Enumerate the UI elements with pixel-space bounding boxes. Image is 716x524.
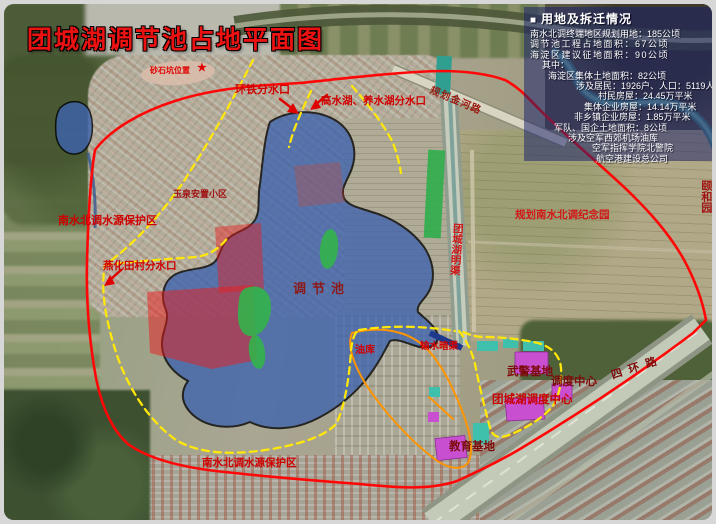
label-memorial-park: 规划南水北调纪念园 xyxy=(515,210,610,221)
label-culvert: 输水暗渠 xyxy=(420,342,458,352)
label-oil-depot: 油库 xyxy=(355,346,375,357)
legend-line: 涉及居民：1926户、人口：5119人 xyxy=(524,81,712,91)
label-armed-police-base: 武警基地 xyxy=(507,366,553,378)
legend-line: 其中： xyxy=(524,60,712,70)
teal-building-2 xyxy=(503,339,518,348)
legend-line: 村民房屋：24.45万平米 xyxy=(524,91,712,101)
legend-line: 海淀区集体土地面积：82公顷 xyxy=(524,71,712,81)
label-tuanchenghu-dispatch-center: 团城湖调度中心 xyxy=(492,394,573,406)
label-huantie-outlet: 环铁分水口 xyxy=(235,85,290,97)
legend-line: 南水北调终端地区规划用地：185公顷 xyxy=(524,29,712,39)
legend-title: ■用地及拆迁情况 xyxy=(524,7,712,29)
legend-line: 集体企业房屋：14.14万平米 xyxy=(524,102,712,112)
sand-pit-note: 砂石坑位置 xyxy=(150,67,190,76)
magenta-building-5 xyxy=(428,412,439,422)
red-zone-upper xyxy=(215,223,264,293)
legend-line: 海淀区建议征地面积：90公顷 xyxy=(524,50,712,60)
regulation-pool-water xyxy=(162,112,438,428)
teal-building-5 xyxy=(429,387,440,397)
page-title: 团城湖调节池占地平面图 xyxy=(27,20,324,56)
channel-green-strip xyxy=(424,150,446,239)
teal-building-1 xyxy=(477,341,498,351)
satellite-map: 团城湖调节池占地平面图 砂石坑位置 ★ 环铁分水口 高水湖、养水湖分水口 南水北… xyxy=(4,4,712,520)
label-summer-palace: 颐和园 xyxy=(699,180,711,213)
label-regulation-pool: 调节池 xyxy=(293,282,350,296)
legend-line: 军队、国企土地面积：8公顷 xyxy=(524,123,712,133)
label-yanhua-outlet: 燕化田村分水口 xyxy=(103,261,177,272)
star-icon: ★ xyxy=(197,63,207,75)
label-yuquan-block: 玉泉安置小区 xyxy=(173,190,227,200)
label-protection-zone-south: 南水北调水源保护区 xyxy=(202,458,297,469)
legend-line: 空军指挥学院北警院 xyxy=(524,143,712,153)
red-zone-village xyxy=(294,162,345,207)
legend-line: 航空港建设总公司 xyxy=(524,154,712,164)
legend-line: 涉及空军西郊机场油库 xyxy=(524,133,712,143)
legend-line: 非乡镇企业房屋：1.85万平米 xyxy=(524,112,712,122)
legend-bullet-icon: ■ xyxy=(530,15,537,26)
legend-panel: ■用地及拆迁情况 南水北调终端地区规划用地：185公顷 调节池工程占地面积：67… xyxy=(524,7,712,161)
legend-line: 调节池工程占地面积：67公顷 xyxy=(524,39,712,49)
label-protection-zone-north: 南水北调水源保护区 xyxy=(58,216,157,228)
slide-frame: 团城湖调节池占地平面图 砂石坑位置 ★ 环铁分水口 高水湖、养水湖分水口 南水北… xyxy=(0,0,716,524)
label-education-base: 教育基地 xyxy=(449,441,495,453)
legend-title-text: 用地及拆迁情况 xyxy=(541,12,632,26)
label-dispatch-center: 调度中心 xyxy=(551,376,597,388)
label-gaoshuihu-outlet: 高水湖、养水湖分水口 xyxy=(321,96,426,107)
northwest-pond xyxy=(56,102,93,154)
